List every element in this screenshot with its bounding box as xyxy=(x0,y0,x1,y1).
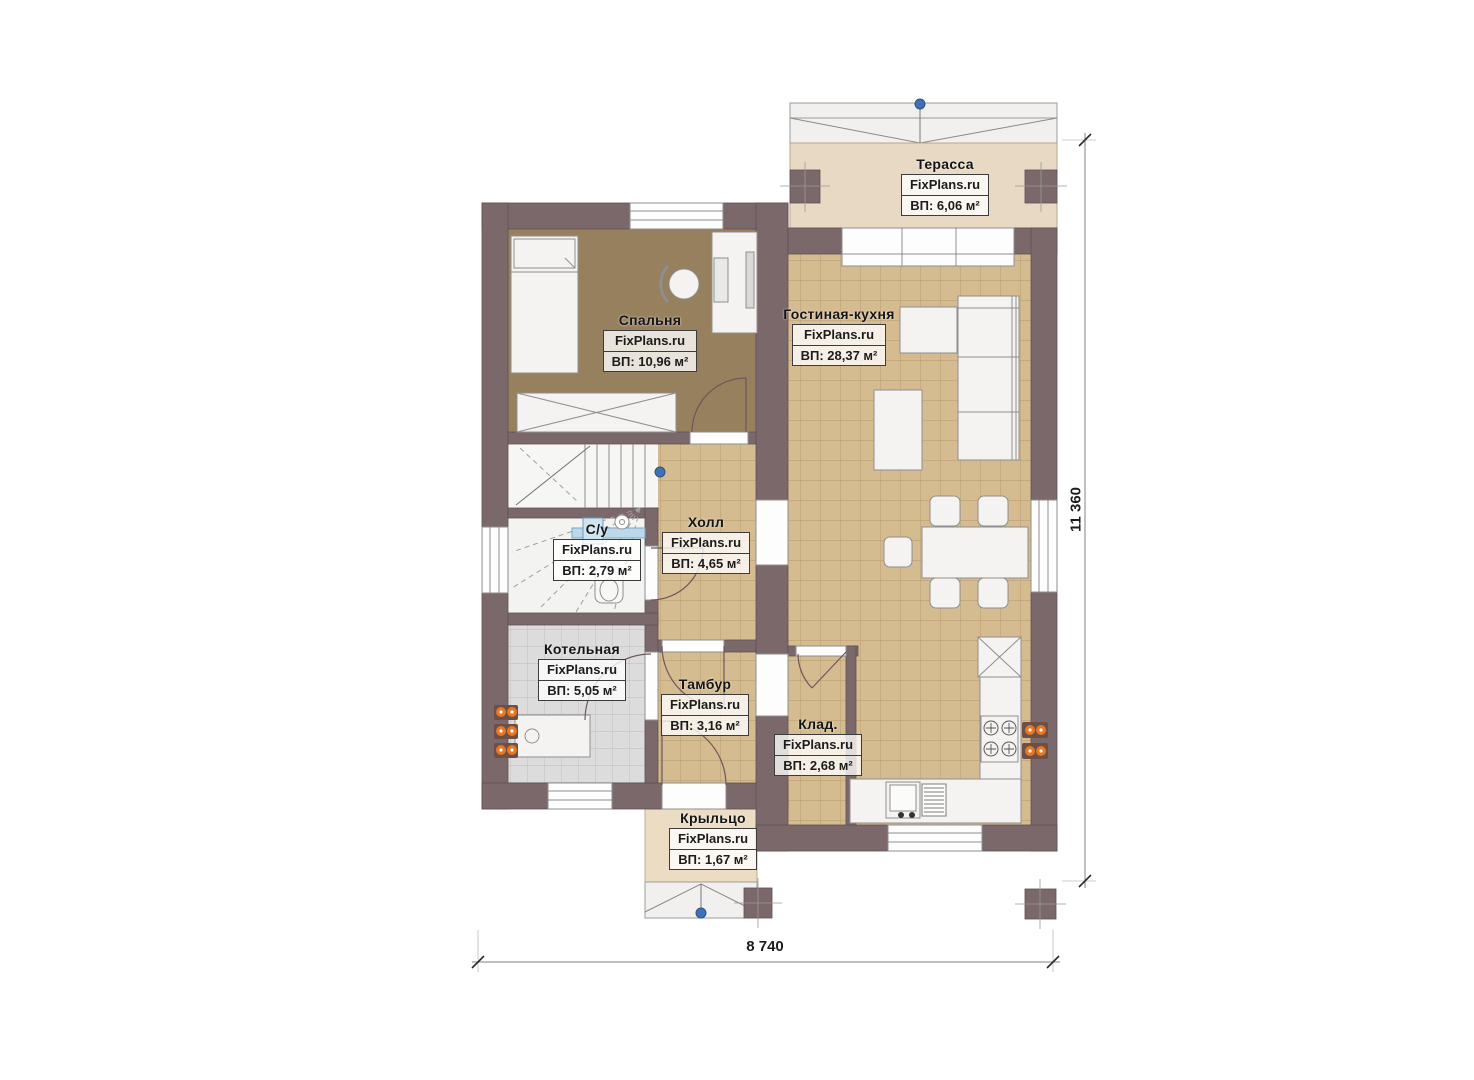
boiler-equipment xyxy=(515,715,590,757)
terrace-floor xyxy=(790,143,1057,228)
monitor xyxy=(746,252,754,308)
opening-hall-living xyxy=(756,500,788,565)
survey-marker-icon xyxy=(655,467,665,477)
keyboard xyxy=(714,258,728,302)
office-chair xyxy=(669,269,699,299)
dimension-height-label: 11 360 xyxy=(1068,465,1085,555)
socket-group xyxy=(1022,722,1048,738)
window-sill xyxy=(842,254,1014,266)
opening-bathroom-door xyxy=(645,546,658,600)
window-bedroom xyxy=(630,203,723,229)
water-heater-icon xyxy=(615,515,629,529)
dining-table xyxy=(922,527,1028,578)
floor-plan-page: Терасса FixPlans.ru ВП: 6,06 м² Спальня … xyxy=(0,0,1474,1080)
socket-group xyxy=(1022,743,1048,759)
toilet-icon xyxy=(595,567,623,603)
opening-storage-door xyxy=(796,646,846,656)
porch-floor xyxy=(645,809,757,882)
dining-chair xyxy=(978,496,1008,526)
bathroom-sink-icon xyxy=(583,518,603,544)
window-kitchen xyxy=(888,825,982,851)
opening-boiler-door xyxy=(645,652,658,720)
opening-hall-door xyxy=(662,640,724,652)
terrace-area xyxy=(790,99,1057,228)
window-boiler xyxy=(548,783,612,809)
survey-marker-icon xyxy=(915,99,925,109)
corner-sofa xyxy=(958,296,1019,460)
opening-bedroom-door xyxy=(690,432,748,444)
opening-entrance-door xyxy=(662,783,726,809)
side-table xyxy=(874,390,922,470)
bed-pillow xyxy=(514,239,575,268)
dining-chair xyxy=(930,496,960,526)
opening-vestibule-kitchen xyxy=(756,654,788,716)
window-dining xyxy=(1031,500,1057,592)
dining-chair xyxy=(930,578,960,608)
floor-plan-drawing xyxy=(0,0,1474,1080)
faucet-icon xyxy=(898,812,904,818)
washing-machine xyxy=(515,715,590,757)
socket-group xyxy=(494,743,518,758)
terrace-steps xyxy=(790,103,1057,143)
terrace-door-window xyxy=(842,228,1014,254)
socket-group xyxy=(494,705,518,720)
window-bathroom xyxy=(482,527,508,593)
survey-marker-icon xyxy=(696,908,706,918)
dimension-width-label: 8 740 xyxy=(720,938,810,955)
wall-bottom-left xyxy=(482,783,788,809)
dining-chair xyxy=(978,578,1008,608)
stair-landing-floor xyxy=(508,444,658,508)
wall-bathroom-boiler xyxy=(508,613,658,625)
dish-rack xyxy=(922,784,946,816)
dining-chair xyxy=(884,537,912,567)
kitchen-sink-basin xyxy=(890,785,916,811)
socket-group xyxy=(494,724,518,739)
coffee-table xyxy=(900,307,957,353)
